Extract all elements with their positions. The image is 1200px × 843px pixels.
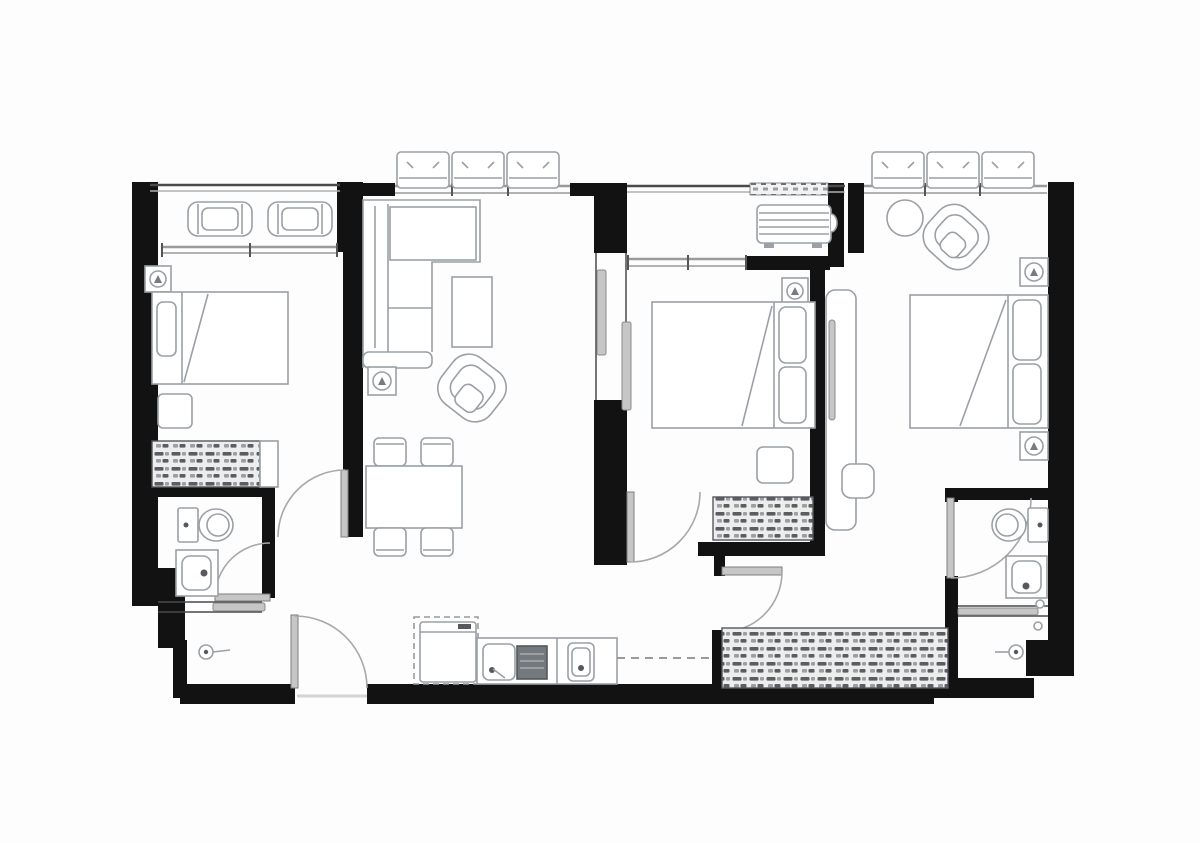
washbasin-icon	[1006, 556, 1047, 598]
toilet-icon	[178, 508, 233, 542]
wall-bedroom3-west-stub	[848, 183, 864, 253]
dining-chair	[374, 528, 406, 556]
ac-condenser-icon	[397, 152, 449, 188]
dresser-hatched	[713, 497, 813, 540]
sofa-chaise-cushion	[390, 207, 476, 260]
wall-lamp-icon	[1020, 432, 1048, 460]
coffee-table	[452, 277, 492, 347]
ac-condenser-icon	[927, 152, 979, 188]
refrigerator	[420, 622, 476, 682]
cooktop	[517, 646, 547, 679]
dining-chair	[421, 438, 453, 466]
wall-lamp-icon	[782, 278, 808, 304]
pillow	[779, 307, 806, 363]
lounge-chair-icon	[268, 202, 332, 236]
ac-condenser-icon	[982, 152, 1034, 188]
nightstand	[158, 394, 192, 428]
dining-chair	[421, 528, 453, 556]
toilet-icon	[992, 508, 1048, 542]
wall-corner-step	[1026, 640, 1074, 676]
double-bed	[652, 302, 815, 428]
round-side-table	[887, 200, 923, 236]
ac-condenser-icon	[452, 152, 504, 188]
ac-condenser-icon	[507, 152, 559, 188]
dining-chair	[374, 438, 406, 466]
wall-left	[132, 182, 158, 606]
wall-balcony2-south	[746, 256, 830, 270]
ac-units-living	[397, 152, 559, 188]
wall-living-top-stub-left	[363, 183, 395, 196]
pillow	[1013, 300, 1041, 360]
washbasin-icon	[176, 550, 218, 596]
lounge-chair-icon	[188, 202, 252, 236]
ac-condenser-icon	[872, 152, 924, 188]
pocket-door-leaf-2	[622, 322, 631, 410]
double-bed	[152, 292, 288, 384]
wall-lamp-icon	[1020, 258, 1048, 286]
floor-plan-page	[0, 0, 1200, 843]
sofa-armrest	[363, 352, 432, 368]
bedroom1-furniture	[145, 266, 288, 487]
kitchen-sink	[483, 644, 515, 680]
wall-bathroom1-east	[262, 485, 275, 598]
pillow	[157, 302, 176, 356]
floor-plan-drawing	[0, 0, 1200, 843]
balcony2	[750, 183, 837, 248]
bathroom1-sliding-leaf	[213, 603, 265, 611]
double-bed	[910, 295, 1048, 428]
dining-table	[366, 466, 462, 528]
ceiling-lamp-icon	[368, 367, 396, 395]
wall-bottom-left	[180, 684, 295, 704]
nightstand	[757, 447, 793, 483]
dresser-side-cabinet	[260, 441, 278, 487]
wall-bathroom2-north	[945, 488, 1050, 500]
vent-grille-hatched	[750, 183, 828, 195]
desk-chair	[842, 464, 874, 498]
ac-units-bedroom3	[872, 152, 1034, 188]
dresser-hatched	[152, 441, 260, 487]
bathroom2-sliding-leaf	[958, 608, 1038, 615]
pillow	[1013, 364, 1041, 424]
faucet-handle	[1034, 622, 1042, 630]
secondary-sink	[568, 643, 594, 681]
wall-lamp-icon	[145, 266, 171, 292]
pocket-door-leaf-1	[597, 270, 606, 355]
pillow	[779, 367, 806, 423]
wall-bedroom2-west-pier	[594, 400, 627, 565]
wall-channel-north	[594, 183, 627, 253]
faucet-handle	[1036, 600, 1044, 608]
wall-post-balcony1	[337, 182, 363, 252]
long-wardrobe-hatched	[722, 628, 948, 688]
wall-right	[1048, 182, 1074, 644]
ac-condenser-unit	[757, 205, 837, 248]
